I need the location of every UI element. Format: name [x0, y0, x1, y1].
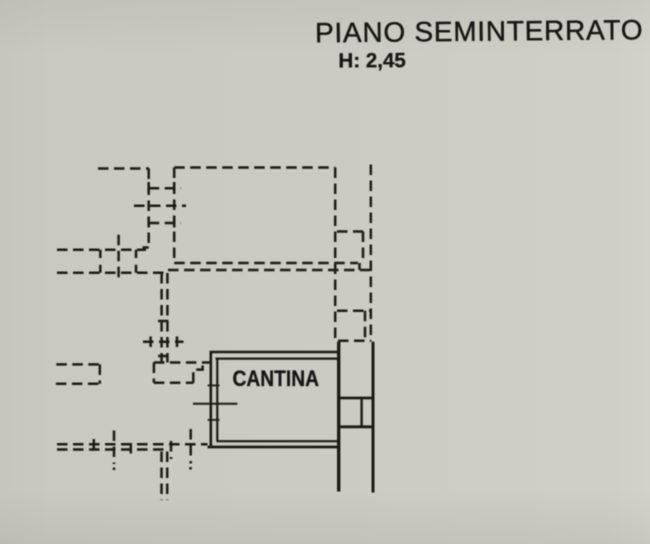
svg-text:H: 2,45: H: 2,45 [338, 49, 405, 72]
svg-text:PIANO SEMINTERRATO: PIANO SEMINTERRATO [315, 14, 643, 48]
svg-text:CANTINA: CANTINA [233, 366, 320, 391]
